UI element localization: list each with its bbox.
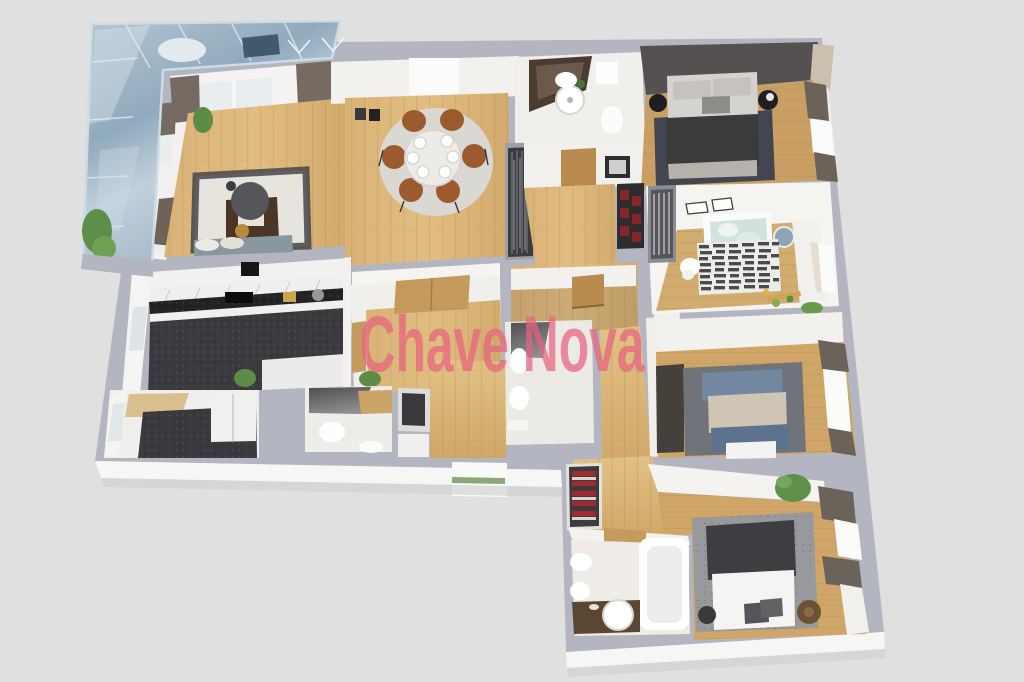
svg-text:Chave Nova: Chave Nova [360, 299, 646, 388]
